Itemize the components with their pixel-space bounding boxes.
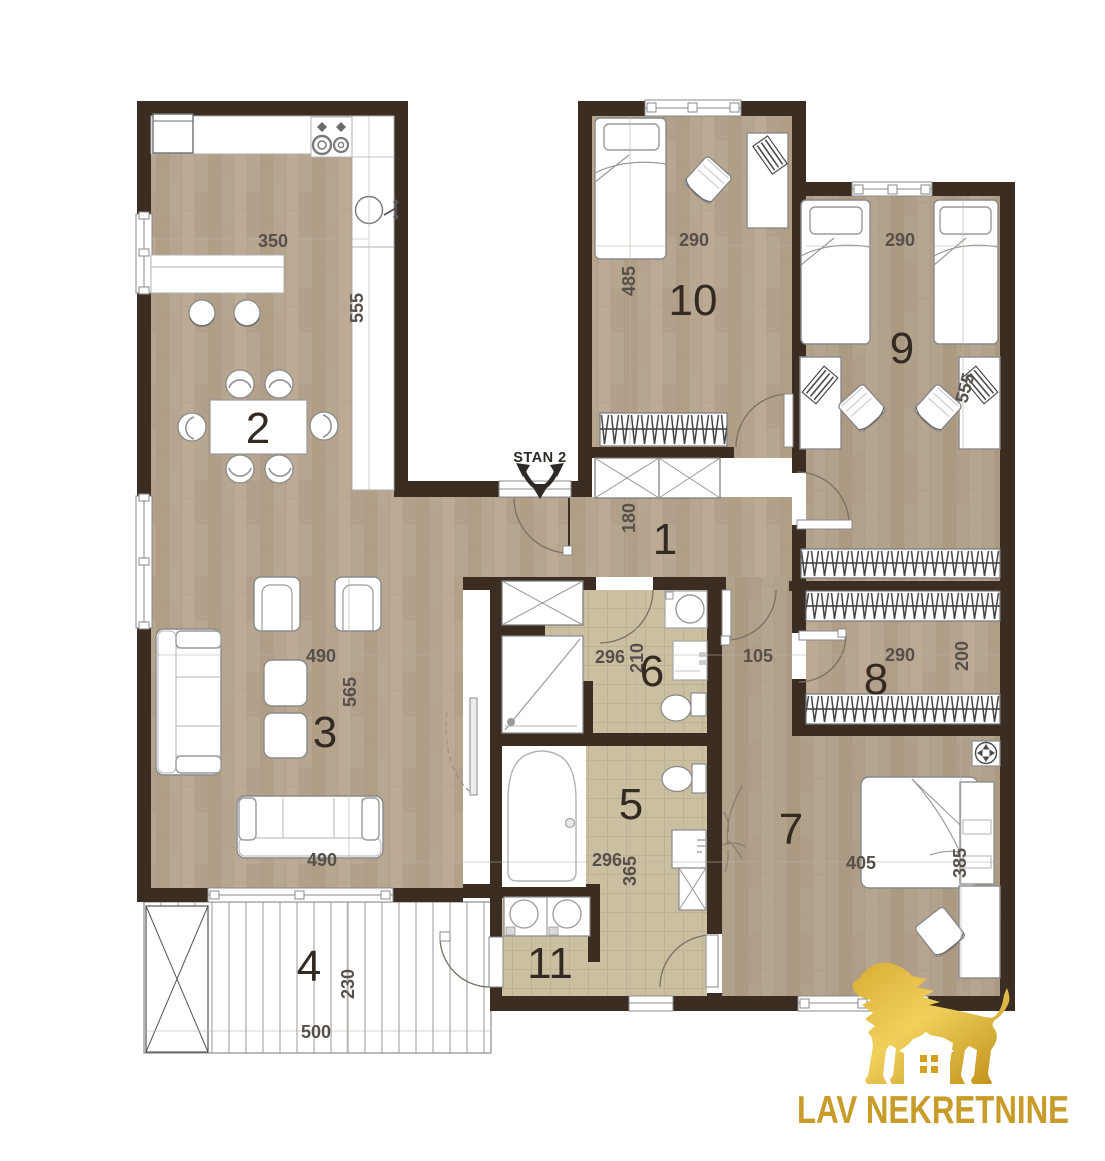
svg-text:6: 6 (640, 647, 664, 696)
svg-text:11: 11 (527, 939, 573, 988)
svg-text:9: 9 (890, 324, 914, 373)
svg-text:230: 230 (338, 969, 358, 999)
svg-text:10: 10 (669, 276, 718, 325)
svg-text:7: 7 (779, 805, 803, 854)
svg-text:180: 180 (619, 503, 639, 533)
svg-text:485: 485 (619, 266, 639, 296)
svg-text:385: 385 (950, 848, 970, 878)
svg-text:200: 200 (952, 641, 972, 671)
svg-text:365: 365 (620, 856, 640, 886)
svg-text:555: 555 (347, 293, 367, 323)
svg-text:290: 290 (885, 645, 915, 665)
svg-text:490: 490 (306, 646, 336, 666)
svg-text:3: 3 (313, 708, 337, 757)
svg-text:LAV NEKRETNINE: LAV NEKRETNINE (797, 1089, 1069, 1132)
svg-text:290: 290 (679, 230, 709, 250)
svg-text:565: 565 (340, 677, 360, 707)
svg-text:4: 4 (297, 942, 321, 991)
svg-text:490: 490 (307, 850, 337, 870)
svg-text:5: 5 (619, 780, 643, 829)
svg-text:105: 105 (743, 646, 773, 666)
svg-text:296: 296 (595, 647, 625, 667)
svg-text:500: 500 (301, 1022, 331, 1042)
svg-text:290: 290 (885, 230, 915, 250)
svg-text:8: 8 (864, 655, 888, 704)
svg-text:296: 296 (592, 850, 622, 870)
svg-text:2: 2 (246, 404, 270, 453)
svg-text:STAN 2: STAN 2 (513, 450, 567, 466)
svg-text:350: 350 (258, 231, 288, 251)
svg-text:1: 1 (653, 515, 677, 564)
svg-text:405: 405 (846, 853, 876, 873)
